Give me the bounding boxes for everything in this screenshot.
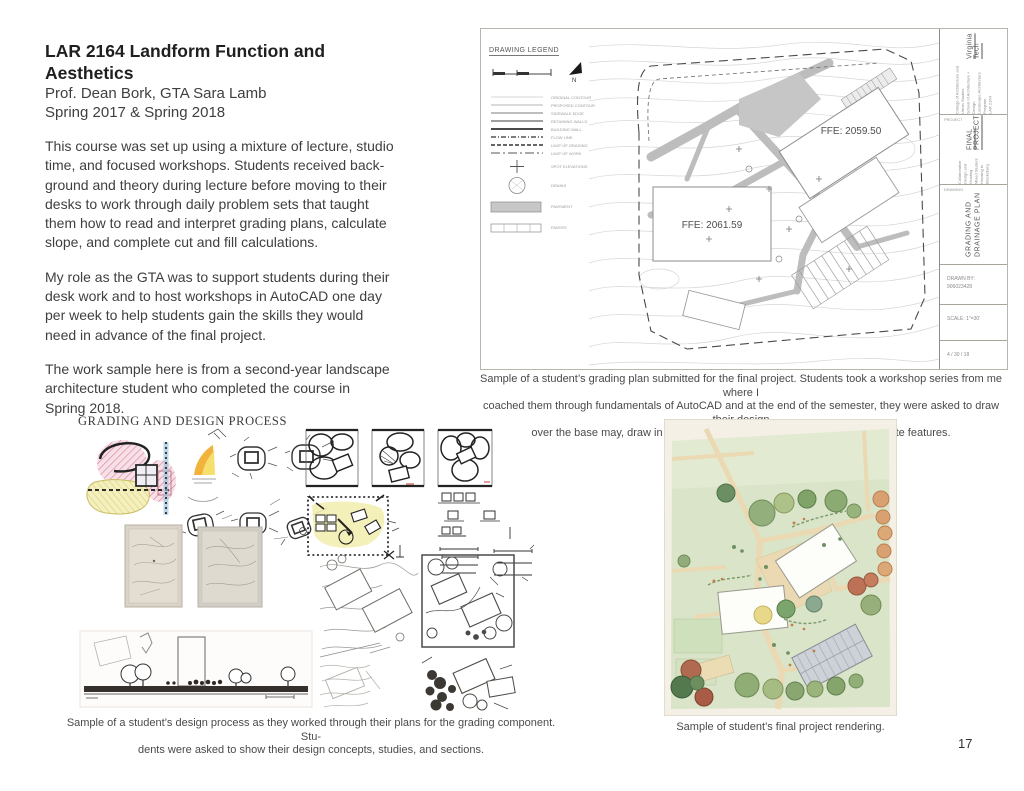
final-project-rendering [664,419,897,716]
legend-row: DRAINS [489,176,593,195]
legend-items: ORIGINAL CONTOUR PROPOSED CONTOUR SIDEWA… [489,93,593,237]
legend-label: LIMIT OF GRADING [551,143,588,148]
legend-row: BUILDING WALL [489,125,593,133]
plan-sketch-framed [422,555,514,647]
framed-bubble-panels [306,430,492,486]
terms-line: Spring 2017 & Spring 2018 [45,103,397,122]
instructor-line: Prof. Dean Bork, GTA Sara Lamb [45,84,397,103]
legend-row: LIMIT OF WORK [489,149,593,157]
legend-label: RETAINING WALLS [551,119,587,124]
legend-row: LIMIT OF GRADING [489,141,593,149]
proposed-contour-line-sample [489,101,545,109]
highlighted-plan-sketch [300,495,405,559]
rendering-caption: Sample of student’s final project render… [664,721,897,735]
design-process-collage [70,427,540,712]
bubble-diagram-sketch [87,440,176,515]
course-paragraph-2: My role as the GTA was to support studen… [45,268,397,345]
building-wall-line-sample [489,125,545,133]
legend-label: BUILDING WALL [551,127,582,132]
legend-row: FLOW LINE [489,133,593,141]
legend-row: PROPOSED CONTOUR [489,101,593,109]
titleblock-drawing: DRAWING GRADING AND DRAINAGE PLAN [940,185,1007,265]
school-subtext: College of Architecture and Urban Studie… [954,62,993,114]
ffe-label-2: FFE: 2059.50 [821,126,882,137]
plaza-area [739,73,821,137]
legend-row: RETAINING WALLS [489,117,593,125]
legend-label: DRAINS [551,183,566,188]
ffe-label-1: FFE: 2061.59 [682,220,743,231]
original-contour-line-sample [489,93,545,101]
course-paragraph-3: The work sample here is from a second-ye… [45,360,397,418]
sidewalk-edge-line-sample [489,109,545,117]
legend-label: ORIGINAL CONTOUR [551,95,591,100]
north-arrow-icon: N [569,62,582,84]
project-title: FINAL PROJECT [967,115,981,150]
titleblock-scale: SCALE: 1"=30' [940,305,1007,341]
page-number: 17 [958,736,972,751]
titleblock-drawnby: DRAWN BY: 906023428 [940,265,1007,305]
drawn-by-value: DRAWN BY: 906023428 [940,265,1007,291]
page-title: LAR 2164 Landform Function and Aesthetic… [45,40,397,84]
pavement-swatch [489,199,545,215]
elevation-studies [438,493,534,581]
plan-sketch-light [320,555,418,657]
legend-label: PAVEMENT [551,204,572,209]
scale-bar-icon [493,69,551,76]
drawing-legend: DRAWING LEGEND N [489,39,593,237]
course-description: LAR 2164 Landform Function and Aesthetic… [45,40,397,418]
grading-plan-figure: DRAWING LEGEND N [480,28,1008,370]
legend-label: FLOW LINE [551,135,573,140]
plan-sketch-faint [320,665,380,707]
date-value: 4 / 30 / 18 [940,341,1007,359]
flow-line-sample [489,133,545,141]
gradient-triangle-sketch [188,429,226,502]
titleblock-date: 4 / 30 / 18 [940,341,1007,369]
scale-bar-and-north: N [489,60,589,84]
legend-row: SIDEWALK EDGE [489,109,593,117]
north-label: N [572,78,576,84]
drain-circle-icon [489,176,545,195]
school-name: Virginia Tech [967,29,981,59]
pencil-scan-sheets [125,525,262,607]
grading-plan-drawing: FFE: 2061.59 FFE: 2059.50 [589,29,939,369]
course-paragraph-1: This course was set up using a mixture o… [45,137,397,253]
limit-of-work-line-sample [489,149,545,157]
project-subtext: Collaborative Design and Grading Mixed S… [957,153,990,184]
legend-row: SPOT ELEVATIONS [489,159,593,174]
building-1: FFE: 2061.59 [653,187,771,261]
legend-scalebar-row: N [489,60,593,89]
scale-value: SCALE: 1"=30' [940,305,1007,323]
section-drawing [80,631,312,707]
parking-hatch [792,226,889,309]
building-4 [683,290,746,329]
titleblock-project: PROJECT Collaborative Design and Grading… [940,115,1007,185]
retaining-wall-line-sample [489,117,545,125]
portfolio-page: LAR 2164 Landform Function and Aesthetic… [0,0,1024,791]
drawing-title: GRADING AND DRAINAGE PLAN [965,192,983,257]
limit-of-grading-line-sample [489,141,545,149]
legend-row: PAVEMENT [489,197,593,216]
pavers-swatch [489,221,545,235]
legend-row: PAVERS [489,218,593,237]
lawn-panel [674,619,722,653]
plan-sketch-dark [422,657,515,711]
legend-label: SIDEWALK EDGE [551,111,584,116]
spot-elevation-cross-icon [489,159,545,174]
legend-label: SPOT ELEVATIONS [551,164,587,169]
design-process-caption: Sample of a student’s design process as … [62,717,560,758]
legend-row: ORIGINAL CONTOUR [489,93,593,101]
legend-label: PAVERS [551,225,567,230]
legend-title: DRAWING LEGEND [489,47,559,56]
title-block: College of Architecture and Urban Studie… [939,29,1007,369]
titleblock-school: College of Architecture and Urban Studie… [940,29,1007,115]
legend-label: LIMIT OF WORK [551,151,581,156]
